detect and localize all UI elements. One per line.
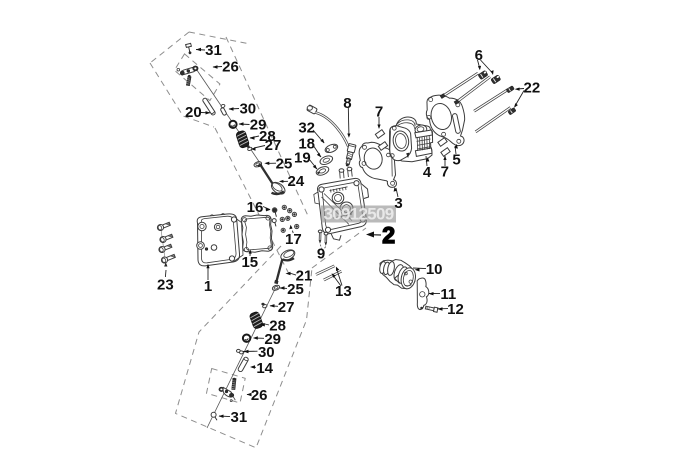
svg-text:25: 25	[276, 156, 293, 173]
svg-text:25: 25	[287, 281, 304, 298]
svg-text:30: 30	[258, 344, 275, 361]
svg-text:26: 26	[222, 59, 239, 76]
svg-text:3: 3	[394, 195, 402, 212]
svg-text:26: 26	[251, 387, 268, 404]
svg-text:30912509: 30912509	[323, 205, 393, 224]
svg-text:19: 19	[294, 150, 311, 167]
svg-text:16: 16	[247, 199, 264, 216]
svg-text:31: 31	[231, 409, 248, 426]
svg-text:29: 29	[250, 117, 267, 134]
svg-text:32: 32	[298, 120, 315, 137]
svg-text:17: 17	[285, 231, 302, 248]
svg-text:24: 24	[288, 173, 305, 190]
svg-text:10: 10	[426, 261, 443, 278]
svg-text:13: 13	[335, 283, 352, 300]
svg-text:14: 14	[256, 360, 273, 377]
svg-text:12: 12	[447, 301, 464, 318]
svg-text:7: 7	[441, 164, 449, 181]
svg-text:1: 1	[204, 278, 212, 295]
svg-text:20: 20	[185, 104, 202, 121]
svg-text:9: 9	[317, 246, 325, 263]
svg-text:30: 30	[239, 101, 256, 118]
svg-text:8: 8	[343, 95, 351, 112]
svg-text:5: 5	[452, 152, 460, 169]
svg-text:23: 23	[157, 277, 174, 294]
svg-text:22: 22	[524, 80, 541, 97]
svg-text:31: 31	[205, 42, 222, 59]
svg-text:15: 15	[241, 254, 258, 271]
svg-text:4: 4	[423, 164, 432, 181]
svg-text:2: 2	[382, 222, 395, 248]
svg-text:27: 27	[278, 299, 295, 316]
